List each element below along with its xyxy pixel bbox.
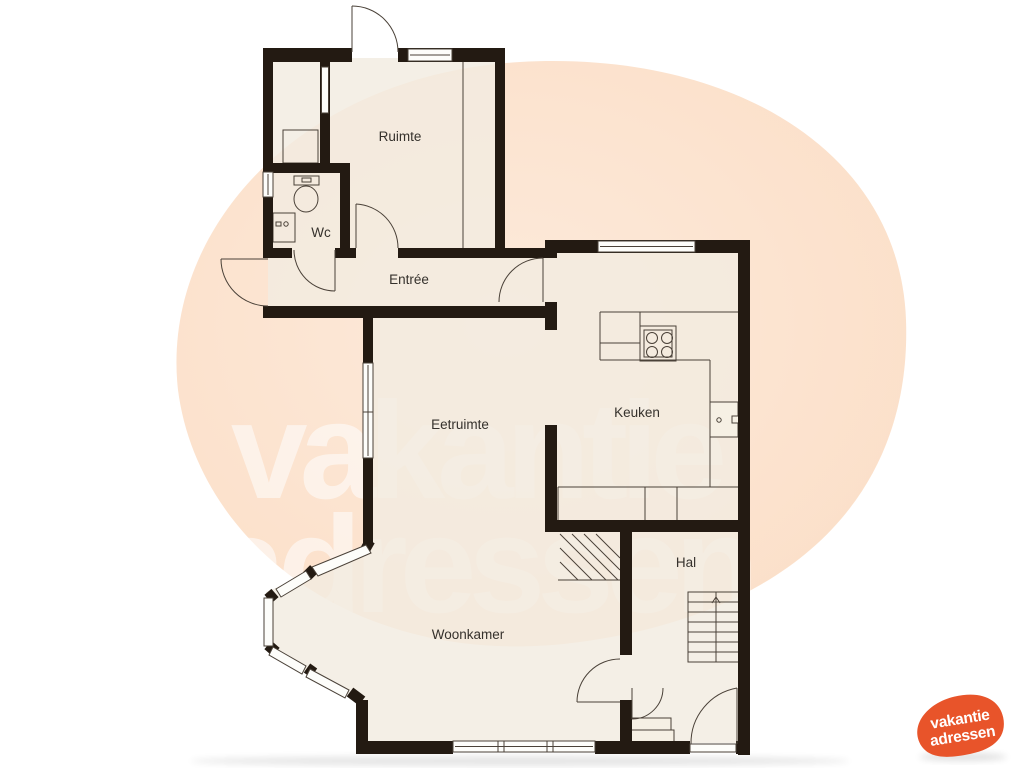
room-label-eetruimte: Eetruimte xyxy=(431,417,489,432)
plan-shadow xyxy=(190,756,850,766)
room-label-woonkamer: Woonkamer xyxy=(432,627,505,642)
room-label-ruimte: Ruimte xyxy=(379,129,422,144)
floorplan-canvas: vakantie adressen xyxy=(0,0,1024,768)
back-door-threshold xyxy=(690,744,736,752)
window-interior-ruimte xyxy=(322,67,329,113)
room-label-hal: Hal xyxy=(676,555,696,570)
window-wc-left xyxy=(263,172,273,197)
room-label-entree: Entrée xyxy=(389,272,429,287)
window-top-ruimte xyxy=(408,49,452,61)
room-label-wc: Wc xyxy=(311,225,331,240)
room-fill-keuken xyxy=(550,250,742,526)
boiler-icon xyxy=(710,402,740,437)
window-woonkamer-bottom xyxy=(453,741,595,752)
floorplan-svg: vakantie adressen xyxy=(0,0,1024,768)
window-eetruimte-left xyxy=(363,363,373,458)
room-label-keuken: Keuken xyxy=(614,405,660,420)
window-keuken-top xyxy=(598,241,695,252)
